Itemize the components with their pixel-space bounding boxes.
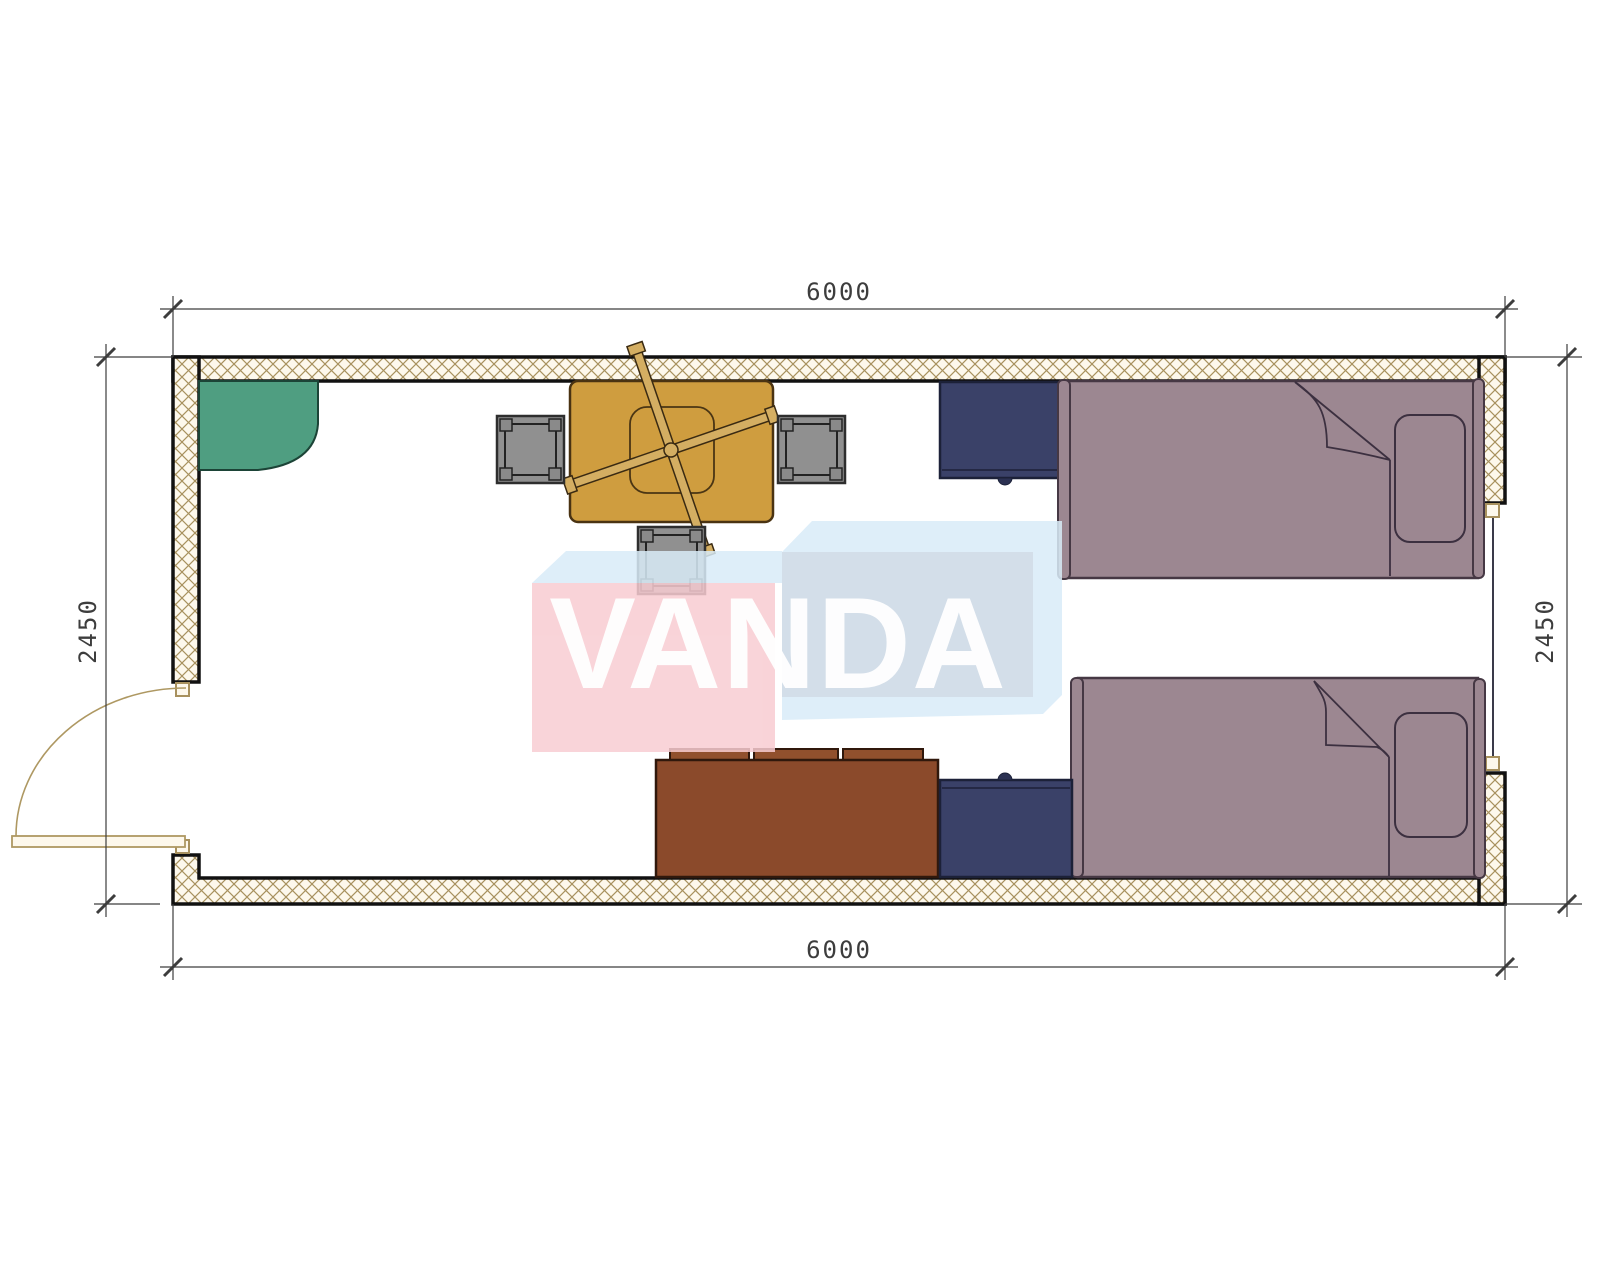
knob xyxy=(998,773,1012,780)
corner-unit xyxy=(199,381,318,470)
bed-top xyxy=(1058,379,1484,579)
top-wall xyxy=(173,357,1505,381)
watermark-brand-text: VANDA xyxy=(549,570,1007,716)
knob xyxy=(998,478,1012,485)
dimension-top-label: 6000 xyxy=(806,278,872,306)
window-jamb-marker xyxy=(1486,504,1499,517)
window-right xyxy=(1486,504,1499,770)
dimension-right-label: 2450 xyxy=(1531,598,1559,664)
nightstand-top xyxy=(940,382,1071,485)
door-jamb-marker xyxy=(176,683,189,696)
nightstand-bottom xyxy=(940,773,1072,877)
door-left xyxy=(12,683,189,853)
pillow xyxy=(1395,713,1467,837)
stool-right xyxy=(778,416,845,483)
stool-left xyxy=(497,416,564,483)
door-swing-arc xyxy=(16,688,186,836)
left-wall xyxy=(173,357,199,682)
bed-bottom xyxy=(1071,678,1485,878)
sofa xyxy=(656,749,938,877)
floor-plan-canvas: VANDA 6000 6000 2450 2450 xyxy=(0,0,1600,1280)
dimension-bottom-label: 6000 xyxy=(806,936,872,964)
sofa-body xyxy=(656,760,938,877)
dimension-left-label: 2450 xyxy=(74,598,102,664)
door-leaf xyxy=(12,836,185,847)
floor-plan-drawing: VANDA 6000 6000 2450 2450 xyxy=(0,0,1600,1280)
window-jamb-marker xyxy=(1486,757,1499,770)
pillow xyxy=(1395,415,1465,542)
